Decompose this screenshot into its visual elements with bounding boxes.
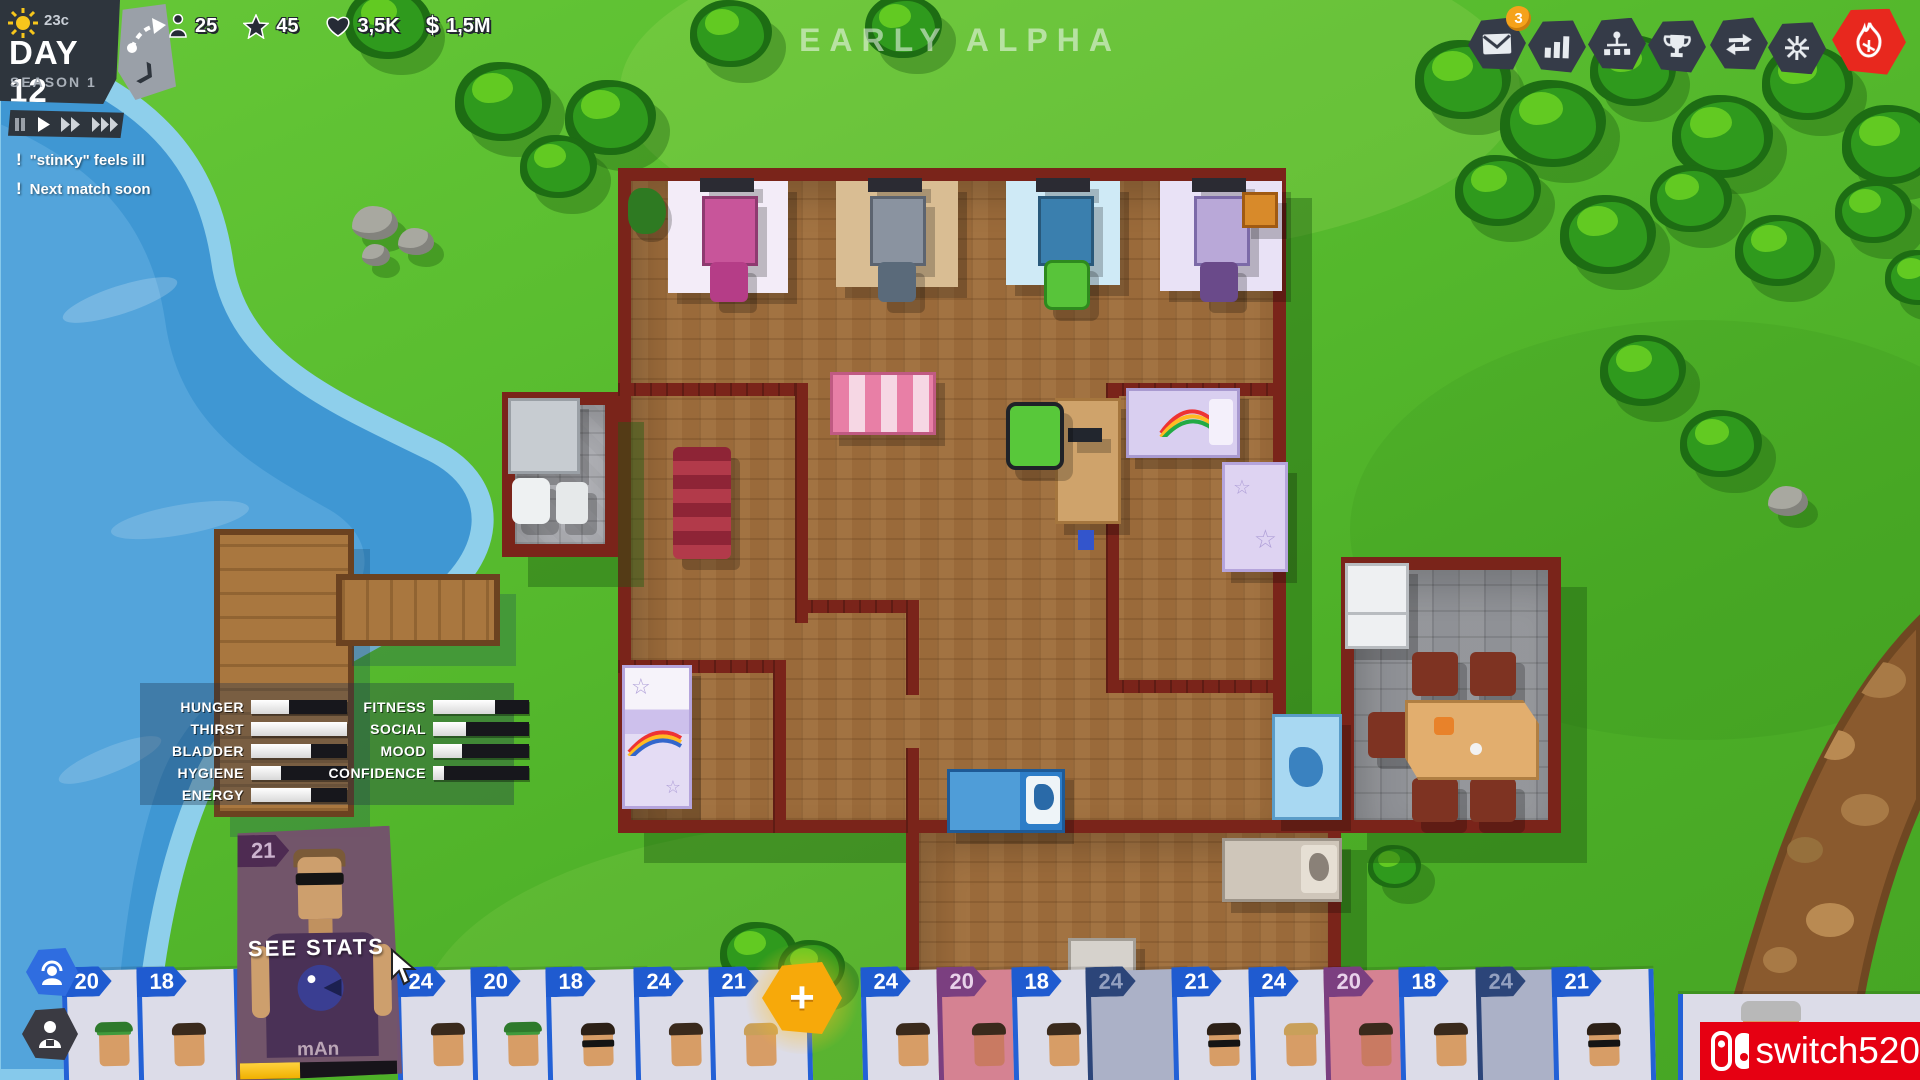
gray-bed[interactable] [1222, 838, 1342, 902]
person-icon [37, 1020, 63, 1048]
arcade-machine[interactable] [870, 196, 926, 266]
dining-chair[interactable] [1470, 652, 1516, 696]
rock [398, 228, 434, 255]
monitor [1068, 428, 1102, 442]
switch-logo-icon [1710, 1030, 1749, 1072]
dining-chair[interactable] [1368, 712, 1410, 758]
watermark-text: switch520 [1755, 1030, 1920, 1072]
swap-icon [1725, 32, 1754, 57]
dining-chair[interactable] [1412, 652, 1458, 696]
gaming-monitor [1036, 178, 1090, 192]
selected-player-card[interactable]: 21 SEE STATS mAn [231, 826, 402, 1080]
notification-text: "stinKy" feels ill [30, 152, 145, 169]
speed-controls [8, 110, 124, 138]
alert-icon: ! [16, 179, 22, 199]
stat-bar [433, 722, 529, 736]
player-avatar [99, 1026, 130, 1067]
player-age-badge: 18 [1398, 966, 1449, 997]
tree [1650, 165, 1732, 232]
green-gaming-chair[interactable] [1006, 402, 1064, 470]
shower[interactable] [508, 398, 580, 474]
star-icon [243, 14, 269, 39]
stat-bar [433, 766, 529, 780]
wooden-walkway [336, 574, 500, 646]
wall [795, 600, 919, 613]
player-age-badge: 18 [136, 966, 187, 997]
population-icon [168, 14, 188, 38]
tree [520, 135, 597, 198]
star-bed[interactable]: ☆ ☆ [1222, 462, 1288, 572]
player-avatar [898, 1026, 929, 1067]
player-age-badge: 18 [545, 966, 596, 997]
player-age-badge: 21 [1551, 966, 1602, 997]
tree [455, 62, 551, 141]
pause-button[interactable] [14, 116, 26, 132]
player-avatar [1361, 1026, 1392, 1067]
player-avatar [1286, 1026, 1317, 1067]
gaming-monitor [1192, 178, 1246, 192]
player-avatar [1049, 1026, 1080, 1067]
stat-row: HUNGER [142, 699, 347, 715]
gaming-chair[interactable] [1044, 260, 1090, 310]
alert-icon: ! [16, 150, 22, 170]
player-age-badge: 24 [1248, 966, 1299, 997]
stat-row: FITNESS [324, 699, 529, 715]
pink-striped-bed[interactable] [830, 372, 936, 435]
stat-row: HYGIENE [142, 765, 347, 781]
crate[interactable] [1242, 192, 1278, 228]
stat-label: SOCIAL [324, 721, 426, 737]
tree [1560, 195, 1656, 274]
fridge[interactable] [1345, 563, 1409, 649]
needs-stats-panel: HUNGER THIRST BLADDER HYGIENE ENERGY FIT… [140, 683, 514, 805]
rock [1768, 486, 1808, 516]
fame-value: 45 [276, 15, 298, 38]
fame-resource: 45 [243, 14, 298, 39]
wall [1106, 680, 1273, 693]
dining-chair[interactable] [1412, 778, 1458, 822]
player-age-badge: 24 [1085, 966, 1136, 997]
notification[interactable]: ! "stinKy" feels ill [16, 150, 145, 170]
tree [1455, 155, 1541, 226]
resource-bar: 25 45 3,5K $ 1,5M [168, 12, 491, 40]
player-avatar [1589, 1026, 1620, 1067]
player-avatar [1436, 1026, 1467, 1067]
roster-card[interactable]: 21 [1551, 969, 1656, 1080]
heart-icon [325, 14, 351, 38]
population-value: 25 [195, 15, 217, 38]
player-avatar [671, 1026, 702, 1067]
notification[interactable]: ! Next match soon [16, 179, 151, 199]
arcade-machine[interactable] [702, 196, 758, 266]
stat-row: BLADDER [142, 743, 347, 759]
headset-person-icon [39, 959, 65, 985]
bar-chart-icon [1544, 34, 1571, 59]
stat-bar [433, 744, 529, 758]
tree [1680, 410, 1762, 477]
money-resource: $ 1,5M [426, 12, 491, 40]
dining-table[interactable] [1405, 700, 1539, 780]
player-name: mAn [235, 1038, 402, 1063]
player-progress-fill [240, 1062, 300, 1079]
hierarchy-icon [1603, 31, 1631, 57]
arcade-machine[interactable] [1038, 196, 1094, 266]
mouse-cursor [388, 948, 422, 988]
gaming-monitor [700, 178, 754, 192]
stat-bar [433, 700, 529, 714]
tree [1600, 335, 1686, 406]
money-icon: $ [426, 12, 439, 40]
fans-value: 3,5K [358, 15, 400, 38]
mail-icon [1482, 32, 1513, 55]
tree [1842, 105, 1920, 184]
player-age-badge: 24 [633, 966, 684, 997]
stat-label: HYGIENE [142, 765, 244, 781]
stat-label: CONFIDENCE [324, 765, 426, 781]
sink[interactable] [556, 482, 588, 524]
day-panel: 23c DAY 12 SEASON 1 [0, 0, 120, 104]
game-scene: ☆ ☆ ☆ ☆ [0, 0, 1920, 1080]
population-resource: 25 [168, 14, 217, 38]
fast-forward-button[interactable] [61, 116, 81, 132]
stat-row: SOCIAL [324, 721, 529, 737]
player-avatar [583, 1026, 614, 1067]
tree [1368, 845, 1421, 888]
stat-label: THIRST [142, 721, 244, 737]
player-age-badge: 24 [860, 966, 911, 997]
player-age-badge: 21 [1171, 966, 1222, 997]
trophy-icon [1663, 33, 1692, 60]
desk[interactable] [1055, 398, 1121, 524]
gaming-chair[interactable] [878, 262, 916, 302]
wall [618, 383, 808, 396]
gaming-chair[interactable] [1200, 262, 1238, 302]
stat-row: CONFIDENCE [324, 765, 529, 781]
wall [795, 383, 808, 623]
light-blue-bed[interactable] [1272, 714, 1342, 820]
tree [1735, 215, 1821, 286]
player-age-badge: 24 [1475, 966, 1526, 997]
wall [906, 600, 919, 695]
player-age-badge: 18 [1011, 966, 1062, 997]
dining-chair[interactable] [1470, 778, 1516, 822]
stat-row: THIRST [142, 721, 347, 737]
red-striped-bed[interactable] [673, 447, 731, 559]
player-age-badge: 20 [470, 966, 521, 997]
money-value: 1,5M [446, 15, 490, 38]
stat-label: HUNGER [142, 699, 244, 715]
house-plant[interactable] [628, 188, 666, 234]
sunglasses [296, 873, 344, 886]
player-avatar [1209, 1026, 1240, 1067]
stat-label: BLADDER [142, 743, 244, 759]
burst-icon [1784, 35, 1810, 61]
trajectory-arrow-icon [126, 16, 166, 56]
day-label: DAY 12 [9, 34, 120, 110]
rock [352, 206, 398, 240]
season-label: SEASON 1 [10, 74, 97, 90]
player-avatar [433, 1026, 464, 1067]
wall [906, 748, 919, 833]
stat-label: ENERGY [142, 787, 244, 803]
see-stats-label[interactable]: SEE STATS [233, 934, 400, 963]
chevron-right-icon: ❯ [133, 57, 161, 89]
stat-row: ENERGY [142, 787, 347, 803]
toilet[interactable] [512, 478, 550, 524]
temperature: 23c [44, 12, 69, 29]
notification-text: Next match soon [30, 181, 151, 198]
mail-badge: 3 [1506, 6, 1531, 31]
player-avatar [508, 1026, 539, 1067]
unicorn-bed[interactable] [1126, 388, 1240, 458]
gaming-monitor [868, 178, 922, 192]
gaming-chair[interactable] [710, 262, 748, 302]
stat-label: MOOD [324, 743, 426, 759]
player-age-badge: 20 [936, 966, 987, 997]
stat-bar [251, 788, 347, 802]
stat-row: MOOD [324, 743, 529, 759]
watermark: switch520 [1700, 1022, 1920, 1080]
wall [773, 660, 786, 833]
player-age-badge: 20 [1323, 966, 1374, 997]
roster-card[interactable]: 18 [136, 969, 241, 1080]
blue-bed[interactable] [947, 769, 1065, 833]
console-object [1078, 530, 1094, 550]
rock [362, 244, 390, 266]
play-button[interactable] [37, 116, 50, 132]
tree [1885, 250, 1920, 305]
fastest-forward-button[interactable] [92, 116, 119, 132]
player-avatar [174, 1026, 205, 1067]
player-avatar [974, 1026, 1005, 1067]
stat-label: FITNESS [324, 699, 426, 715]
fans-resource: 3,5K [325, 14, 400, 38]
rainbow-bed[interactable]: ☆ ☆ [622, 665, 692, 809]
tree [1835, 180, 1912, 243]
flame-icon [1852, 21, 1885, 60]
